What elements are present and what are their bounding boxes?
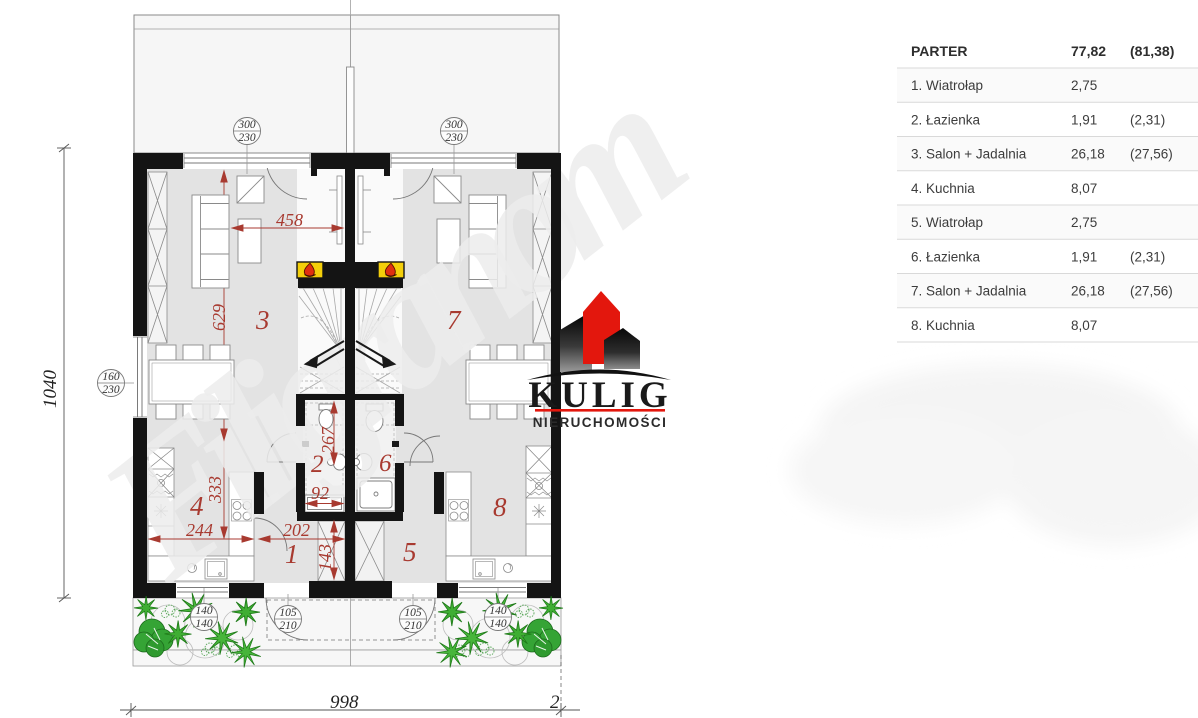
svg-text:5: 5 (403, 537, 417, 567)
svg-text:300: 300 (444, 119, 463, 131)
svg-text:1: 1 (285, 539, 299, 569)
svg-text:NIERUCHOMOŚCI: NIERUCHOMOŚCI (533, 415, 667, 430)
svg-text:140: 140 (195, 618, 213, 630)
svg-text:(81,38): (81,38) (1130, 43, 1174, 59)
svg-text:3. Salon + Jadalnia: 3. Salon + Jadalnia (911, 147, 1027, 162)
svg-text:160: 160 (102, 371, 120, 383)
svg-text:8: 8 (493, 492, 507, 522)
svg-text:77,82: 77,82 (1071, 43, 1106, 59)
svg-text:230: 230 (238, 132, 256, 144)
svg-text:143: 143 (315, 544, 335, 571)
svg-text:4. Kuchnia: 4. Kuchnia (911, 181, 975, 196)
svg-text:4: 4 (190, 491, 204, 521)
svg-text:26,18: 26,18 (1071, 147, 1105, 162)
svg-text:5. Wiatrołap: 5. Wiatrołap (911, 215, 983, 230)
svg-text:333: 333 (205, 476, 225, 504)
svg-text:1,91: 1,91 (1071, 112, 1097, 127)
svg-text:(2,31): (2,31) (1130, 112, 1165, 127)
svg-text:8. Kuchnia: 8. Kuchnia (911, 318, 975, 333)
svg-text:105: 105 (279, 607, 297, 619)
svg-text:2. Łazienka: 2. Łazienka (911, 112, 981, 127)
svg-text:PARTER: PARTER (911, 43, 968, 59)
svg-text:3: 3 (255, 305, 270, 335)
svg-text:267: 267 (318, 426, 338, 454)
svg-text:458: 458 (276, 210, 303, 230)
svg-text:26,18: 26,18 (1071, 284, 1105, 299)
svg-text:140: 140 (489, 618, 507, 630)
svg-text:140: 140 (489, 605, 507, 617)
svg-text:6: 6 (379, 450, 392, 477)
svg-text:8,07: 8,07 (1071, 318, 1097, 333)
svg-text:1,91: 1,91 (1071, 249, 1097, 264)
svg-text:202: 202 (283, 520, 310, 540)
svg-text:6. Łazienka: 6. Łazienka (911, 249, 981, 264)
svg-text:(2,31): (2,31) (1130, 249, 1165, 264)
svg-text:244: 244 (186, 520, 213, 540)
svg-text:300: 300 (237, 119, 256, 131)
svg-text:230: 230 (102, 384, 120, 396)
svg-text:998: 998 (330, 692, 359, 713)
svg-text:2,75: 2,75 (1071, 215, 1097, 230)
svg-text:210: 210 (404, 620, 422, 632)
svg-text:210: 210 (279, 620, 297, 632)
svg-text:(27,56): (27,56) (1130, 147, 1173, 162)
svg-text:8,07: 8,07 (1071, 181, 1097, 196)
svg-text:140: 140 (195, 605, 213, 617)
svg-text:7: 7 (447, 305, 462, 335)
svg-text:1. Wiatrołap: 1. Wiatrołap (911, 78, 983, 93)
svg-text:92: 92 (311, 483, 329, 503)
svg-text:230: 230 (445, 132, 463, 144)
svg-text:629: 629 (209, 304, 229, 331)
svg-text:2: 2 (550, 692, 560, 713)
svg-text:2,75: 2,75 (1071, 78, 1097, 93)
svg-text:7. Salon + Jadalnia: 7. Salon + Jadalnia (911, 284, 1027, 299)
svg-text:(27,56): (27,56) (1130, 284, 1173, 299)
svg-text:105: 105 (404, 607, 422, 619)
svg-text:2: 2 (311, 451, 324, 478)
svg-text:1040: 1040 (40, 370, 61, 409)
